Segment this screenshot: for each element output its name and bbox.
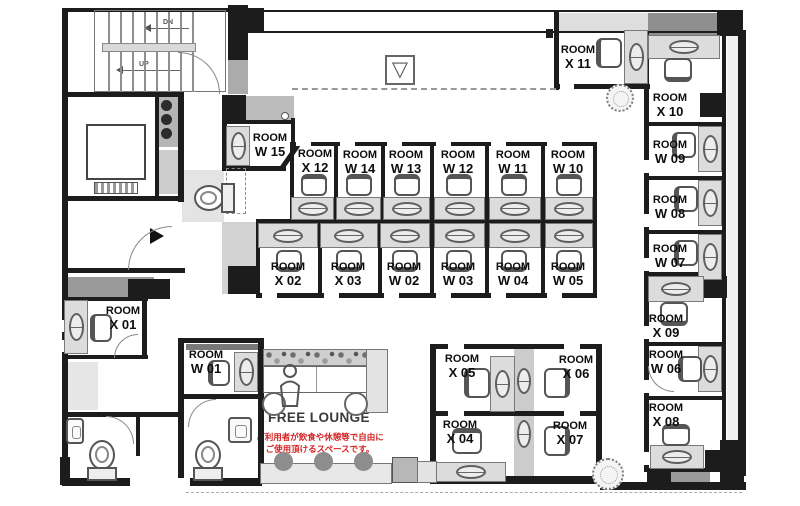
chair-icon	[346, 174, 372, 196]
desk	[234, 352, 258, 392]
desk	[648, 35, 720, 59]
door-swing-arc	[128, 226, 172, 270]
desk	[291, 197, 334, 220]
desk	[624, 30, 648, 84]
door-swing-arc	[106, 416, 134, 444]
wall	[222, 120, 295, 124]
desk-oval-icon	[703, 355, 718, 383]
floor-plan: DN UP ▽ FREE LOUNGE ご利用者が飲食や休憩等で自由に ご使用頂…	[0, 0, 800, 506]
locker-dot-icon	[161, 128, 172, 139]
stool-icon	[354, 452, 373, 471]
door-gap	[262, 293, 277, 298]
room-label-w13: ROOMW 13	[376, 149, 436, 177]
room-prefix: ROOM	[649, 349, 683, 361]
room-prefix: ROOM	[441, 149, 475, 161]
desk-oval-icon	[554, 229, 584, 243]
stair-tread	[168, 12, 170, 92]
room-label-w08: ROOMW 08	[640, 194, 700, 222]
desk-oval-icon	[392, 202, 422, 216]
room-prefix: ROOM	[253, 132, 287, 144]
room-label-w05: ROOMW 05	[538, 261, 598, 289]
door-gap	[448, 411, 464, 416]
door-gap	[560, 84, 574, 89]
room-prefix: ROOM	[189, 349, 223, 361]
room-label-x07: ROOMX 07	[540, 420, 600, 448]
wall	[62, 412, 180, 417]
desk	[698, 234, 722, 280]
room-prefix: ROOM	[331, 261, 365, 273]
ceiling-dashed-line	[292, 88, 556, 90]
room-number: W 01	[176, 362, 236, 377]
desk-oval-icon	[500, 229, 530, 243]
wall	[644, 396, 726, 400]
stair-tread	[120, 12, 122, 92]
room-prefix: ROOM	[343, 149, 377, 161]
room-prefix: ROOM	[551, 261, 585, 273]
plant-icon	[592, 458, 624, 490]
door-gap	[130, 478, 190, 486]
room-prefix: ROOM	[649, 313, 683, 325]
desk-oval-icon	[517, 420, 531, 448]
desk-oval-icon	[239, 358, 254, 386]
wall	[228, 266, 256, 294]
door-gap	[644, 380, 649, 393]
wall	[546, 29, 553, 38]
desk	[434, 197, 485, 220]
desk-oval-icon	[517, 368, 531, 394]
door-knob-icon	[281, 112, 289, 120]
door-gap	[387, 142, 402, 146]
room-number: W 03	[428, 274, 488, 289]
chair-icon	[501, 174, 527, 196]
room-label-w03: ROOMW 03	[428, 261, 488, 289]
wall	[647, 470, 671, 486]
room-label-w02: ROOMW 02	[374, 261, 434, 289]
wall	[60, 457, 70, 485]
wall	[248, 31, 742, 33]
shaded-area	[228, 58, 248, 94]
room-label-x10: ROOMX 10	[640, 92, 700, 120]
boundary-dashed-line	[186, 492, 742, 493]
wall	[705, 450, 723, 470]
desk-oval-icon	[334, 229, 364, 243]
wall	[182, 394, 262, 399]
room-prefix: ROOM	[271, 261, 305, 273]
door-swing-arc	[114, 334, 138, 358]
desk-oval-icon	[390, 229, 420, 243]
locker-dot-icon	[161, 100, 172, 111]
desk	[650, 445, 704, 469]
room-prefix: ROOM	[387, 261, 421, 273]
room-prefix: ROOM	[553, 420, 587, 432]
desk-oval-icon	[669, 40, 699, 54]
lounge-cabinet	[392, 457, 418, 483]
room-label-w10: ROOMW 10	[538, 149, 598, 177]
desk	[320, 223, 378, 248]
wall	[128, 279, 170, 299]
shaded-area	[727, 35, 738, 440]
desk-oval-icon	[456, 465, 486, 479]
room-prefix: ROOM	[653, 92, 687, 104]
desk-oval-icon	[273, 229, 303, 243]
room-label-w11: ROOMW 11	[483, 149, 543, 177]
wall	[155, 92, 159, 198]
room-prefix: ROOM	[559, 354, 593, 366]
door-gap	[436, 293, 451, 298]
desk-oval-icon	[445, 229, 475, 243]
room-label-w09: ROOMW 09	[640, 139, 700, 167]
counter-divider	[316, 367, 317, 392]
desk-oval-icon	[703, 189, 718, 217]
chair-icon	[301, 174, 327, 196]
room-label-w04: ROOMW 04	[483, 261, 543, 289]
wall	[62, 8, 68, 482]
desk-oval-icon	[703, 243, 718, 271]
room-prefix: ROOM	[653, 243, 687, 255]
room-label-x06: ROOMX 06	[546, 354, 606, 382]
room-number: X 11	[548, 57, 608, 72]
stool-icon	[314, 452, 333, 471]
room-prefix: ROOM	[496, 261, 530, 273]
chair-icon	[664, 58, 692, 82]
room-prefix: ROOM	[389, 149, 423, 161]
desk-oval-icon	[661, 282, 691, 296]
room-number: W 10	[538, 162, 598, 177]
room-number: W 11	[483, 162, 543, 177]
door-gap	[491, 293, 506, 298]
chair-icon	[556, 174, 582, 196]
toilet-icon	[192, 440, 222, 478]
desk-oval-icon	[703, 135, 718, 163]
room-number: W 05	[538, 274, 598, 289]
desk	[489, 197, 541, 220]
door-gap	[448, 344, 464, 349]
door-gap	[491, 142, 506, 146]
room-label-w12: ROOMW 12	[428, 149, 488, 177]
room-prefix: ROOM	[653, 194, 687, 206]
wall	[720, 440, 744, 488]
room-label-x02: ROOMX 02	[258, 261, 318, 289]
room-label-x09: ROOMX 09	[636, 313, 696, 341]
room-number: X 01	[93, 318, 153, 333]
chair-icon	[394, 174, 420, 196]
door-swing-arc	[188, 399, 216, 427]
wall	[178, 92, 184, 202]
room-prefix: ROOM	[653, 139, 687, 151]
desk	[545, 223, 593, 248]
door-gap	[564, 411, 580, 416]
room-number: W 04	[483, 274, 543, 289]
wall	[228, 5, 248, 60]
desk	[64, 300, 88, 354]
room-number: X 07	[540, 433, 600, 448]
desk	[489, 223, 541, 248]
room-number: X 06	[546, 367, 606, 382]
desk	[436, 462, 506, 482]
desk	[698, 126, 722, 172]
room-prefix: ROOM	[649, 402, 683, 414]
door-gap	[644, 452, 649, 465]
room-number: X 03	[318, 274, 378, 289]
room-number: X 02	[258, 274, 318, 289]
stool-icon	[344, 392, 368, 416]
desk	[383, 197, 430, 220]
desk-oval-icon	[500, 202, 530, 216]
stair-landing	[102, 43, 196, 52]
room-number: W 07	[640, 256, 700, 271]
stair-tread	[108, 12, 110, 92]
room-prefix: ROOM	[551, 149, 585, 161]
room-label-w07: ROOMW 07	[640, 243, 700, 271]
door-gap	[547, 293, 562, 298]
desk-oval-icon	[554, 202, 584, 216]
room-label-x04: ROOMX 04	[430, 419, 490, 447]
chair-icon	[446, 174, 472, 196]
room-number: X 05	[432, 366, 492, 381]
room-label-w01: ROOMW 01	[176, 349, 236, 377]
room-label-w06: ROOMW 06	[636, 349, 696, 377]
desk	[258, 223, 318, 248]
desk	[698, 180, 722, 226]
door-gap	[547, 142, 562, 146]
locker-dot-icon	[161, 114, 172, 125]
wall	[700, 93, 726, 117]
desk	[490, 356, 515, 412]
room-prefix: ROOM	[443, 419, 477, 431]
elevator-car	[86, 124, 146, 180]
desk	[380, 223, 430, 248]
wall	[256, 293, 597, 298]
room-prefix: ROOM	[441, 261, 475, 273]
room-label-x03: ROOMX 03	[318, 261, 378, 289]
room-number: W 06	[636, 362, 696, 377]
desk	[545, 197, 593, 220]
room-number: W 02	[374, 274, 434, 289]
elevator-doors	[94, 182, 138, 194]
desk-oval-icon	[629, 43, 644, 71]
stool-icon	[274, 452, 293, 471]
room-prefix: ROOM	[496, 149, 530, 161]
door-gap	[564, 344, 580, 349]
room-number: X 04	[430, 432, 490, 447]
room-prefix: ROOM	[298, 148, 332, 160]
person-icon	[276, 362, 304, 414]
desk-oval-icon	[495, 370, 510, 398]
toilet-icon	[194, 184, 232, 214]
lounge-counter-end	[417, 461, 437, 483]
desk-oval-icon	[298, 202, 328, 216]
shaft-symbol: ▽	[385, 55, 415, 85]
room-number: W 09	[640, 152, 700, 167]
room-label-x08: ROOMX 08	[636, 402, 696, 430]
shaded-area	[158, 150, 178, 194]
wall	[248, 10, 742, 12]
room-number: X 10	[640, 105, 700, 120]
sink-icon	[66, 418, 84, 444]
lounge-counter-side	[366, 349, 388, 413]
room-number: X 09	[636, 326, 696, 341]
desk-oval-icon	[445, 202, 475, 216]
desk-oval-icon	[662, 450, 692, 464]
desk-oval-icon	[344, 202, 374, 216]
desk	[434, 223, 485, 248]
shaded-area	[64, 362, 98, 410]
desk-oval-icon	[69, 313, 84, 341]
desk	[648, 276, 704, 302]
wall	[222, 95, 246, 123]
toilet-icon	[86, 440, 116, 478]
plant-icon	[606, 84, 634, 112]
wall	[738, 30, 746, 476]
wall	[62, 196, 184, 201]
desk	[336, 197, 381, 220]
door-gap	[384, 293, 399, 298]
wall	[62, 92, 182, 97]
room-label-x11: ROOMX 11	[548, 44, 608, 72]
room-number: W 08	[640, 207, 700, 222]
door-gap	[436, 142, 451, 146]
room-label-x05: ROOMX 05	[432, 353, 492, 381]
stair-tread	[132, 12, 134, 92]
stair-tread	[156, 12, 158, 92]
wall	[136, 414, 140, 456]
room-number: X 08	[636, 415, 696, 430]
room-label-x01: ROOMX 01	[93, 305, 153, 333]
sink-icon	[228, 417, 252, 443]
room-prefix: ROOM	[445, 353, 479, 365]
door-gap	[324, 293, 339, 298]
room-number: W 13	[376, 162, 436, 177]
lounge-note-line1: ご利用者が飲食や休憩等で自由に	[248, 431, 392, 443]
room-number: W 12	[428, 162, 488, 177]
stair-tread	[144, 12, 146, 92]
door-gap	[340, 142, 355, 146]
wall	[178, 338, 264, 343]
room-prefix: ROOM	[106, 305, 140, 317]
room-prefix: ROOM	[561, 44, 595, 56]
